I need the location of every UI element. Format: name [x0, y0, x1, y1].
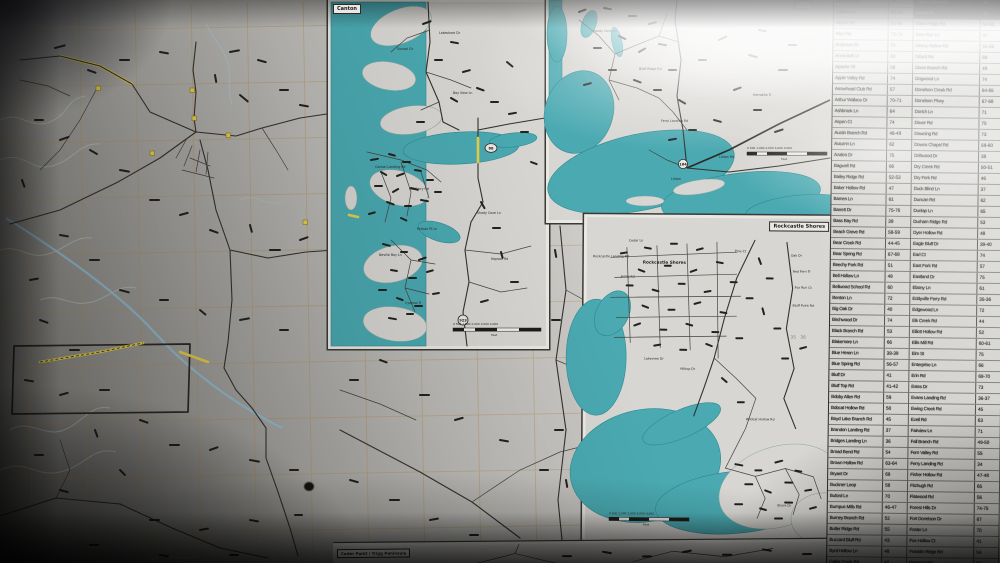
grid-ref-cell: 75 — [888, 0, 913, 7]
grid-ref-cell: 49-50 — [974, 438, 999, 448]
grid-ref-cell: 56-57 — [884, 360, 909, 370]
grid-ref-cell: 46 — [978, 174, 1000, 184]
svg-text:Red Fern Tr: Red Fern Tr — [793, 270, 811, 274]
index-row: Cabin Creek Rd42 — [827, 557, 906, 563]
grid-ref-cell: 75 — [977, 273, 1000, 283]
grid-ref-cell: 74 — [979, 75, 1000, 85]
grid-ref-cell: 71 — [979, 108, 1000, 118]
grid-ref-cell: 50 — [883, 404, 908, 414]
svg-text:Rockcastle Landing Rd: Rockcastle Landing Rd — [593, 254, 629, 258]
svg-text:Pine Ct: Pine Ct — [735, 249, 747, 253]
road-name-cell: Arthur Wallace Dr — [833, 95, 887, 106]
svg-text:Bluff Ridge Rd: Bluff Ridge Rd — [639, 67, 662, 71]
road-name-cell: Forest Hills Dr — [908, 503, 974, 514]
road-name-cell: Daniel Dr — [914, 8, 980, 19]
grid-ref-cell: 44 — [976, 317, 1000, 327]
grid-ref-cell: 44-45 — [885, 239, 910, 249]
grid-ref-cell: 59-60 — [978, 141, 1000, 151]
road-name-cell: Dogwood Ln — [913, 74, 979, 85]
grid-ref-cell: 60-61 — [976, 339, 1000, 349]
grid-ref-cell: 70 — [973, 526, 998, 536]
grid-ref-cell: 46-47 — [882, 503, 907, 513]
grid-ref-cell: 50-51 — [978, 163, 1000, 173]
road-name-cell: Aspen Ct — [832, 117, 886, 128]
road-name-cell: Apple Valley Rd — [833, 73, 887, 84]
road-name-cell: Bell Hollow Ln — [831, 271, 885, 282]
grid-ref-cell: 36 — [883, 437, 908, 447]
grid-ref-cell: 58 — [980, 0, 1000, 8]
svg-text:Feet: Feet — [781, 157, 788, 161]
svg-text:Hematite Tr: Hematite Tr — [753, 93, 772, 97]
grid-ref-cell: 65 — [974, 482, 999, 492]
svg-text:Cedar Ln: Cedar Ln — [629, 238, 643, 242]
grid-ref-cell: 68 — [979, 53, 1000, 63]
road-name-cell: Evans Landing Rd — [909, 393, 975, 404]
inset-bottom: Cedar Point / Trigg Peninsula — [333, 542, 833, 563]
svg-text:Cypress Tr: Cypress Tr — [405, 301, 422, 305]
road-name-cell: Dailey Hollow Rd — [914, 0, 980, 8]
road-name-cell: Black Branch Rd — [830, 326, 884, 337]
grid-ref-cell: 70-71 — [887, 96, 912, 106]
inset-canton: Canton — [331, 2, 546, 346]
road-name-cell: Brown Hollow Rd — [828, 458, 882, 469]
svg-text:Feet: Feet — [643, 523, 650, 527]
grid-ref-cell: 57 — [977, 262, 1000, 272]
svg-text:0 500 1,000 2,000 3,000 4,000: 0 500 1,000 2,000 3,000 4,000 — [609, 511, 654, 515]
grid-ref-cell: 69 — [882, 470, 907, 480]
boundary-rectangle — [12, 344, 190, 414]
svg-text:Shore Dr: Shore Dr — [777, 503, 792, 507]
street-index-column-a-b: Academy St75Adams Ln62-63Airport Rd55-56… — [827, 0, 914, 563]
road-name-cell: Duck Blind Ln — [912, 184, 978, 195]
svg-text:0 500 1,000 2,000 3,000 4,000: 0 500 1,000 2,000 3,000 4,000 — [747, 146, 792, 150]
grid-ref-label: 35 — [790, 335, 796, 341]
grid-ref-cell: 52 — [882, 514, 907, 524]
road-name-cell: Eddyville Ferry Rd — [910, 294, 976, 305]
road-name-cell: Ashbrook Ln — [833, 106, 887, 117]
grid-ref-cell: 37 — [978, 185, 1000, 195]
svg-text:Sunset Cir: Sunset Cir — [397, 47, 414, 51]
road-name-cell: Fairview Ln — [909, 426, 975, 437]
grid-ref-cell: 67-68 — [885, 250, 910, 260]
road-name-cell: Bryant Dr — [828, 469, 882, 480]
svg-text:164: 164 — [679, 163, 687, 167]
road-name-cell: Blakemore Ln — [830, 337, 884, 348]
svg-text:Lakeshore Dr: Lakeshore Dr — [439, 31, 461, 35]
road-name-cell: Blue Spring Rd — [829, 359, 883, 370]
road-name-cell: Downs Chapel Rd — [912, 140, 978, 151]
road-name-cell: Bluff Dr — [829, 370, 883, 381]
grid-ref-cell: 62 — [977, 196, 1000, 206]
grid-ref-cell: 66 — [884, 338, 909, 348]
road-name-cell: Allen Rd — [833, 29, 887, 40]
road-name-cell: Fort Donelson Dr — [908, 514, 974, 525]
grid-ref-cell: 45 — [975, 405, 1000, 415]
subdivision-label: Rockcastle Shores — [643, 260, 687, 265]
svg-text:Ferry Landing Rd: Ferry Landing Rd — [661, 119, 688, 123]
grid-ref-cell: 55 — [974, 449, 999, 459]
place-label-linton: Linton — [671, 177, 681, 181]
grid-ref-cell: 75 — [886, 151, 911, 161]
grid-ref-cell: 74 — [887, 41, 912, 51]
grid-ref-cell: 42 — [881, 558, 906, 563]
road-name-cell: Enterprise Ln — [909, 360, 975, 371]
road-name-cell: Buford Ln — [828, 491, 882, 502]
road-name-cell: Bailey Ridge Rd — [832, 172, 886, 183]
road-name-cell: Boyd Lake Branch Rd — [829, 414, 883, 425]
svg-text:Linton Rd: Linton Rd — [719, 155, 734, 159]
street-index-panel: Academy St75Adams Ln62-63Airport Rd55-56… — [826, 0, 1000, 563]
svg-text:68: 68 — [488, 147, 494, 151]
grid-ref-cell: 41 — [883, 371, 908, 381]
grid-ref-cell: 71 — [975, 427, 1000, 437]
svg-text:Bay View Ln: Bay View Ln — [453, 91, 472, 95]
grid-ref-cell: 75-76 — [885, 206, 910, 216]
svg-text:Lakeview Dr: Lakeview Dr — [644, 357, 664, 361]
road-name-cell: Fisher Hollow Rd — [908, 470, 974, 481]
road-name-cell: Austin Branch Rd — [832, 128, 886, 139]
grid-ref-cell: 58 — [887, 63, 912, 73]
road-name-cell: Bridges Landing Ln — [829, 436, 883, 447]
grid-ref-cell: 62 — [973, 559, 998, 563]
grid-ref-cell: 35-36 — [976, 295, 1000, 305]
road-name-cell: Ewing Creek Rd — [909, 404, 975, 415]
road-name-cell: Elk Creek Rd — [910, 316, 976, 327]
grid-ref-cell: 53 — [977, 218, 1000, 228]
svg-text:Hilltop Dr: Hilltop Dr — [680, 367, 696, 371]
street-index-column-d-f: Dailey Hollow Rd58Daniel Dr72Davis Ridge… — [907, 0, 1000, 563]
grid-ref-cell: 51 — [885, 261, 910, 271]
road-name-cell: Donelson Creek Rd — [913, 85, 979, 96]
road-name-cell: Deer Run Ln — [914, 30, 980, 41]
road-name-cell: Buzzard Bluff Rd — [827, 535, 881, 546]
road-name-cell: Donelson Pkwy — [913, 96, 979, 107]
road-name-cell: Apache Trl — [833, 62, 887, 73]
road-name-cell: Elm St — [910, 349, 976, 360]
road-name-cell: Airport Rd — [834, 18, 888, 29]
road-name-cell: Bear Creek Rd — [831, 238, 885, 249]
road-name-cell: Academy St — [834, 0, 888, 7]
road-name-cell: Elliott Hollow Rd — [910, 327, 976, 338]
road-name-cell: Barrett Dr — [831, 205, 885, 216]
grid-ref-cell: 48-49 — [886, 129, 911, 139]
road-name-cell: Cabin Creek Rd — [827, 557, 881, 563]
grid-ref-cell: 40 — [884, 305, 909, 315]
grid-ref-cell: 70 — [882, 492, 907, 502]
road-name-cell: Fern Valley Rd — [908, 448, 974, 459]
svg-text:Oak Dr: Oak Dr — [791, 254, 803, 258]
road-name-cell: Burney Branch Rd — [828, 513, 882, 524]
grid-ref-cell: 39 — [885, 217, 910, 227]
svg-text:Shady Cove Ln: Shady Cove Ln — [477, 211, 501, 215]
road-name-cell: Dunlap Ln — [911, 206, 977, 217]
road-name-cell: Dover Rd — [912, 118, 978, 129]
road-name-cell: Broad Bend Rd — [828, 447, 882, 458]
grid-ref-cell: 66 — [886, 162, 911, 172]
road-name-cell: Blue Heron Ln — [830, 348, 884, 359]
road-name-cell: Downing Rd — [912, 129, 978, 140]
grid-ref-cell: 63 — [887, 52, 912, 62]
road-name-cell: Earl Ct — [911, 250, 977, 261]
svg-text:0 500 1,000 2,000 3,000 4,000: 0 500 1,000 2,000 3,000 4,000 — [453, 322, 498, 326]
scale-bar: 0 500 1,000 2,000 3,000 4,000 Feet — [747, 146, 827, 161]
road-name-cell: Erin Rd — [909, 371, 975, 382]
paper-blemish-dot — [304, 482, 314, 491]
road-name-cell: Ellis Mill Rd — [910, 338, 976, 349]
grid-ref-cell: 63 — [975, 416, 1000, 426]
grid-ref-cell: 38-39 — [884, 349, 909, 359]
grid-ref-cell: 64-65 — [979, 86, 1000, 96]
us-68-shield: 68 — [485, 144, 497, 153]
grid-ref-cell: 60 — [884, 283, 909, 293]
grid-ref-cell: 49 — [885, 272, 910, 282]
road-name-cell: Duncan Rd — [912, 195, 978, 206]
road-name-cell: Eastland Dr — [911, 272, 977, 283]
road-name-smudges — [563, 549, 811, 557]
svg-text:Pelican Pt Ln: Pelican Pt Ln — [417, 227, 437, 231]
grid-ref-cell: 38 — [978, 152, 1000, 162]
road-name-cell: Foster Ln — [907, 525, 973, 536]
grid-ref-cell: 37 — [883, 426, 908, 436]
grid-ref-cell: 36-37 — [975, 394, 1000, 404]
grid-ref-cell: 54-55 — [980, 20, 1000, 30]
road-name-cell: Bagwell Rd — [832, 161, 886, 172]
road-name-cell: Anderson Dr — [833, 40, 887, 51]
road-name-cell: Flatwood Rd — [908, 492, 974, 503]
inset-linton: 164 Linton 0 500 1,000 2,000 3,000 4,000… — [549, 0, 831, 220]
road-name-cell: Ebony Ln — [910, 283, 976, 294]
grid-ref-cell: 64 — [887, 107, 912, 117]
road-name-cell: East Fork Rd — [911, 261, 977, 272]
road-name-cell: Bellwood School Rd — [830, 282, 884, 293]
inset-corner-box — [795, 1, 812, 9]
road-name-cell: Dillard Rd — [913, 52, 979, 63]
grid-ref-cell: 74 — [977, 251, 1000, 261]
grid-ref-cell: 73-74 — [888, 30, 913, 40]
grid-ref-cell: 55-56 — [888, 19, 913, 29]
svg-text:Neville Bay Ln: Neville Bay Ln — [379, 253, 402, 257]
inset-rockcastle-title: Rockcastle Shores — [769, 221, 829, 231]
grid-ref-cell: 72 — [884, 294, 909, 304]
road-name-cell: Benton Ln — [830, 293, 884, 304]
road-name-cell: Dry Fork Rd — [912, 173, 978, 184]
grid-ref-cell: 61 — [886, 195, 911, 205]
svg-text:Wildcat Hollow Rd: Wildcat Hollow Rd — [746, 417, 775, 421]
grid-ref-cell: 74 — [884, 316, 909, 326]
road-name-cell: Brandon Landing Rd — [829, 425, 883, 436]
road-name-cell: Ezell Rd — [909, 415, 975, 426]
road-name-cell: Eagle Bluff Dr — [911, 239, 977, 250]
road-name-cell: Bobby Allen Rd — [829, 392, 883, 403]
svg-text:Jenny Rd: Jenny Rd — [620, 274, 635, 278]
road-name-cell: Barnes Ln — [831, 194, 885, 205]
grid-ref-label: 36 — [800, 335, 806, 341]
road-name-cell: Buckner Loop — [828, 480, 882, 491]
grid-ref-cell: 62 — [886, 140, 911, 150]
photographed-wall-map: 15 16 Canton — [0, 0, 1000, 563]
grid-ref-cell: 61 — [976, 284, 1000, 294]
road-name-cell: Butler Ridge Rd — [827, 524, 881, 535]
grid-ref-cell: 62-63 — [888, 8, 913, 18]
grid-ref-cell: 65 — [977, 207, 1000, 217]
grid-ref-cell: 73 — [975, 383, 1000, 393]
road-name-cell: Dyer Hollow Rd — [911, 228, 977, 239]
grid-ref-cell: 58-59 — [885, 228, 910, 238]
road-name-cell: Baker Hollow Rd — [832, 183, 886, 194]
grid-ref-cell: 39-40 — [977, 240, 1000, 250]
grid-ref-cell: 74 — [886, 118, 911, 128]
grid-ref-cell: 75 — [978, 119, 1000, 129]
road-name-cell: Fitzhugh Rd — [908, 481, 974, 492]
road-name-cell: Driftwood Dr — [912, 151, 978, 162]
grid-ref-cell: 74 — [887, 74, 912, 84]
grid-ref-cell: 48 — [977, 229, 1000, 239]
grid-ref-cell: 34 — [974, 460, 999, 470]
svg-text:Sandy Cove Ln: Sandy Cove Ln — [593, 29, 617, 33]
grid-ref-cell: 67 — [974, 515, 999, 525]
road-name-cell: Bear Spring Rd — [831, 249, 885, 260]
road-name-cell: Fox Hollow Ct — [907, 536, 973, 547]
grid-ref-cell: 41-42 — [883, 382, 908, 392]
grid-ref-cell: 58 — [882, 481, 907, 491]
road-name-cell: Beach Grove Rd — [831, 227, 885, 238]
road-name-cell: Bobcat Hollow Rd — [829, 403, 883, 414]
contour-lines — [0, 96, 284, 560]
grid-ref-cell: 72 — [976, 306, 1000, 316]
road-name-cell: Dixon Branch Rd — [913, 63, 979, 74]
grid-ref-cell: 56 — [974, 493, 999, 503]
road-name-cell: Durham Ridge Rd — [911, 217, 977, 228]
grid-ref-cell: 51-52 — [979, 42, 1000, 52]
lake-water — [534, 0, 858, 233]
road-name-cell: Anna Bell Ln — [833, 51, 887, 62]
road-name-cell: Fall Branch Rd — [909, 437, 975, 448]
road-name-cell: Dortch Ln — [913, 107, 979, 118]
svg-text:Fox Run Ct: Fox Run Ct — [795, 286, 813, 290]
road-name-cell: Autumn Ln — [832, 139, 886, 150]
highlighted-roads — [40, 56, 208, 362]
grid-ref-cell: 54 — [973, 548, 998, 558]
road-name-cell: Franklin Ridge Rd — [907, 547, 973, 558]
grid-ref-cell: 63-64 — [882, 459, 907, 469]
road-name-cell: Big Oak Dr — [830, 304, 884, 315]
inset-bottom-title: Cedar Point / Trigg Peninsula — [337, 549, 410, 559]
road-name-cell: Ferry Landing Rd — [908, 459, 974, 470]
grid-ref-cell: 49 — [979, 64, 1000, 74]
grid-ref-cell: 57 — [887, 85, 912, 95]
svg-text:Feet: Feet — [491, 333, 498, 337]
road-name-cell: Bumpus Mills Rd — [828, 502, 882, 513]
road-name-cell: Arrowhead Club Rd — [833, 84, 887, 95]
road-name-cell: Bass Bay Rd — [831, 216, 885, 227]
grid-ref-cell: 69-70 — [975, 372, 1000, 382]
stream-line — [206, 24, 232, 104]
grid-ref-cell: 73 — [978, 130, 1000, 140]
grid-ref-cell: 48 — [881, 547, 906, 557]
road-name-cell: Azalea Dr — [832, 150, 886, 161]
grid-ref-cell: 67-68 — [979, 97, 1000, 107]
inset-rockcastle: Rockcastle Shores Rockcastle S — [585, 217, 832, 541]
grid-ref-cell: 53 — [884, 327, 909, 337]
road-name-cell: Byrd Hollow Ln — [827, 546, 881, 557]
road-name-cell: Beechy Fork Rd — [831, 260, 885, 271]
grid-ref-cell: 59 — [883, 393, 908, 403]
grid-ref-cell: 66 — [975, 361, 1000, 371]
svg-text:Canton Landing Rd: Canton Landing Rd — [375, 165, 405, 169]
grid-ref-cell: 52-53 — [886, 173, 911, 183]
road-name-cell: Freeman Rd — [907, 558, 973, 563]
grid-ref-cell: 52 — [976, 328, 1000, 338]
grid-ref-cell: 45 — [883, 415, 908, 425]
inset-canton-title: Canton — [333, 4, 361, 14]
road-name-cell: Davis Ridge Rd — [914, 19, 980, 30]
index-row: Freeman Rd62 — [907, 558, 998, 563]
road-name-cell: Adams Ln — [834, 7, 888, 18]
grid-ref-cell: 54 — [882, 448, 907, 458]
road-name-cell: Estes Dr — [909, 382, 975, 393]
road-name-cell: Bluff Top Rd — [829, 381, 883, 392]
grid-ref-cell: 47 — [979, 31, 1000, 41]
road-name-cell: Edgewood Ln — [910, 305, 976, 316]
grid-ref-cell: 47-48 — [974, 471, 999, 481]
grid-ref-cell: 47 — [886, 184, 911, 194]
road-name-cell: Birchwood Dr — [830, 315, 884, 326]
grid-ref-cell: 55 — [881, 525, 906, 535]
grid-ref-cell: 43 — [881, 536, 906, 546]
ky-164-shield: 164 — [678, 159, 687, 168]
grid-ref-cell: 74-75 — [974, 504, 999, 514]
svg-text:Bluff Point Rd: Bluff Point Rd — [793, 304, 814, 308]
grid-ref-cell: 75 — [976, 350, 1000, 360]
road-name-cell: Dry Creek Rd — [912, 162, 978, 173]
grid-ref-cell: 72 — [980, 9, 1000, 19]
svg-text:Hopson Rd: Hopson Rd — [491, 257, 508, 261]
road-name-cell: Denny Hollow Rd — [913, 41, 979, 52]
grid-ref-cell: 41 — [973, 537, 998, 547]
